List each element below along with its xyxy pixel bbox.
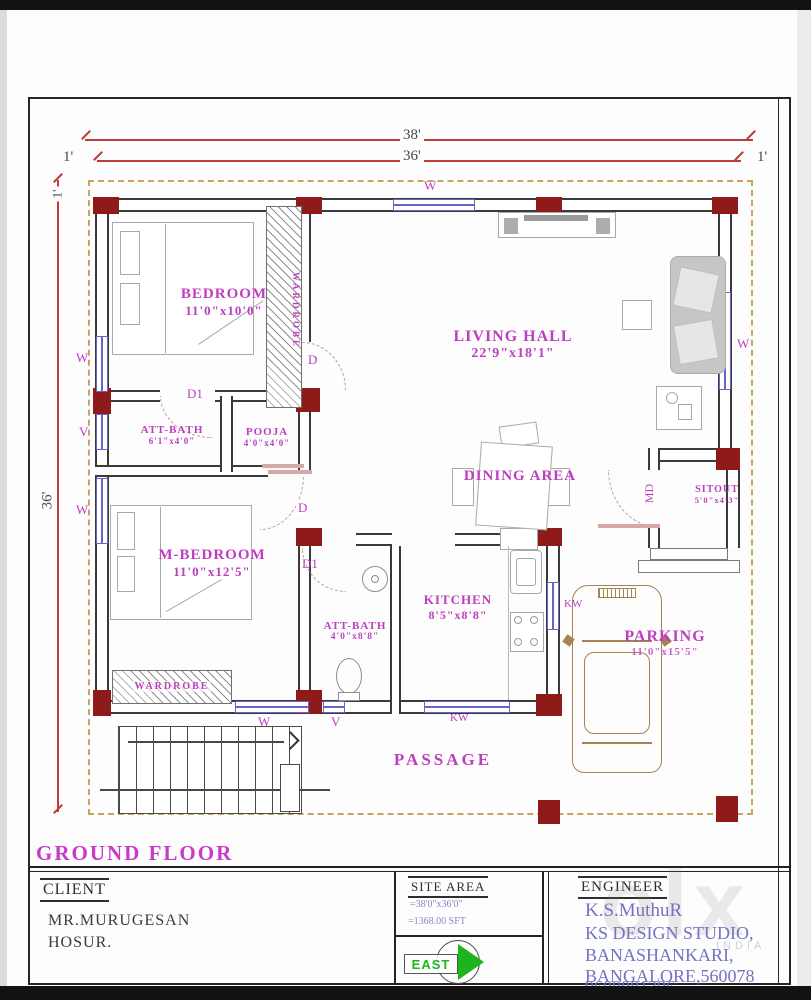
engineer-heading: ENGINEER [578,876,667,899]
burner [530,638,538,646]
car-grill [598,588,636,598]
kitchen-window [547,582,559,630]
east-arrow-icon [458,944,484,980]
column [716,448,740,470]
room-label-passage: PASSAGE [394,750,492,770]
tv-screen [524,215,588,221]
right-edge-strip [797,10,811,1000]
floor-plan-photo: 38' 36' 1' 1' 36' 1' [0,0,811,1000]
east-label-box: EAST [404,954,458,974]
window [235,701,309,713]
stair-flight-box [280,764,300,812]
room-label-parking: PARKING 11'0"x15'5" [624,628,705,658]
dim-38-label: 38' [400,127,424,144]
toilet [336,658,362,694]
titleblock-top-line2 [28,871,791,872]
tv-speaker [504,218,518,234]
pillow [120,283,140,325]
bottom-black-bar [0,986,811,1000]
wall-sitout-left-b [648,528,660,548]
kitchen-sink-bowl [516,558,536,586]
left-edge-strip [0,10,7,1000]
dim-depth-label: 36' [39,489,56,513]
siteblock-divider [396,935,542,937]
room-label-bedroom: BEDROOM 11'0"x10'0" [181,286,267,319]
stair-landing-line [128,741,284,743]
room-label-kitchen: KITCHEN 8'5"x8'8" [424,592,492,623]
wash-basin-icon [666,392,678,404]
top-black-bar [0,0,811,10]
column [716,796,738,822]
burner [514,638,522,646]
room-label-sitout: SITOUT 5'0"x4'3" [695,484,739,505]
window-label: W [424,178,436,194]
column [296,528,322,546]
client-city: HOSUR. [48,934,112,952]
kitchen-window-label: KW [564,598,582,610]
pillow [117,556,135,592]
engineer-name: K.S.MuthuR [585,900,682,922]
mbed-door-sill [262,464,304,468]
tv-speaker [596,218,610,234]
pooja-door-sill [268,470,312,474]
car-cabin [584,652,650,734]
room-label-attbath2: ATT-BATH 4'0"x8'8" [324,620,387,642]
site-area-dims: =38'0"x36'0" [410,899,462,910]
sitout-step-2 [638,560,740,573]
ventilator [323,701,345,713]
site-area-sqft: =1368.00 SFT [408,916,466,927]
sofa-cushion [673,319,719,365]
wash-counter-icon [678,404,692,420]
ventilator-label: V [79,424,88,440]
dim-line-depth [57,180,59,812]
column [712,197,738,214]
wall-bath-pooja [220,396,233,472]
door-label: D [296,500,309,516]
floor-title: GROUND FLOOR [36,841,233,866]
dining-chair [500,528,538,550]
sheet-border-inner-right [778,97,779,985]
window [393,199,475,211]
client-name: MR.MURUGESAN [48,912,190,930]
burner [530,616,538,624]
titleblock-vline1 [394,871,396,985]
kitchen-counter-line [508,546,509,700]
wall-sitout-left-a [648,448,660,470]
toilet-tank [338,692,360,701]
wash-basin-center [371,575,379,583]
pillow [120,231,140,275]
wall-mbed-top [95,465,268,477]
engineer-area: BANASHANKARI, [585,945,734,966]
wardrobe-label: WARDROBE [267,221,301,401]
wardrobe-bedroom: WARDROBE [266,206,302,408]
titleblock-vline2b [548,871,549,985]
client-heading: CLIENT [40,878,109,902]
column [536,528,562,546]
column [536,694,562,716]
side-table [622,300,652,330]
window-label: W [76,350,88,366]
room-label-attbath1: ATT-BATH 6'1"x4'0" [141,424,204,446]
ventilator-label: V [331,714,340,730]
window [96,336,108,392]
ventilator [96,414,108,450]
room-label-pooja: POOJA 4'0"x4'0" [244,426,291,448]
window-label: W [737,336,749,352]
column [93,690,111,716]
wall-bath2-kitchen [390,546,401,714]
wall-kitchen-right [546,546,560,714]
room-label-mbedroom: M-BEDROOM 11'0"x12'5" [158,547,265,580]
dim-36-label: 36' [400,148,424,165]
window-label: W [258,714,270,730]
setback-left-label: 1' [60,149,76,166]
setback-right-label: 1' [754,149,770,166]
room-label-dining: DINING AREA [464,468,576,485]
staircase [118,726,302,814]
bed-line [165,224,166,353]
wall-kitchen-top-b [356,533,392,546]
kitchen-window-label: KW [450,712,468,724]
main-door-label: MD [642,484,657,503]
door-label: D1 [185,386,205,402]
door-label: D1 [302,556,318,572]
site-area-heading: SITE AREA [408,876,488,898]
window-label: W [76,502,88,518]
door-label: D [308,352,317,368]
titleblock-vline2 [542,871,544,985]
olx-watermark-country: INDIA [716,940,765,952]
pillow [117,512,135,550]
sitout-step-1 [650,548,728,560]
titleblock-top-line [28,866,791,868]
window [96,478,108,544]
setback-top-label: 1' [49,187,65,202]
main-door-sill [598,524,660,528]
column [538,800,560,824]
burner [514,616,522,624]
room-label-living: LIVING HALL 22'9"x18'1" [453,328,572,362]
dining-table [475,442,553,531]
wardrobe-mbedroom: WARDROBE [112,670,232,704]
wardrobe-label: WARDROBE [133,681,212,692]
wall-left [95,198,109,714]
car-rear-window [582,742,652,744]
sofa-cushion [672,266,719,313]
column [93,197,119,214]
